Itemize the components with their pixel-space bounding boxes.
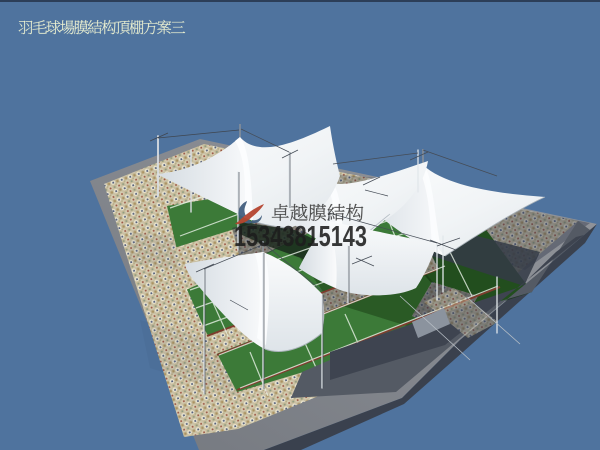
svg-text:15343815143: 15343815143	[234, 221, 367, 253]
